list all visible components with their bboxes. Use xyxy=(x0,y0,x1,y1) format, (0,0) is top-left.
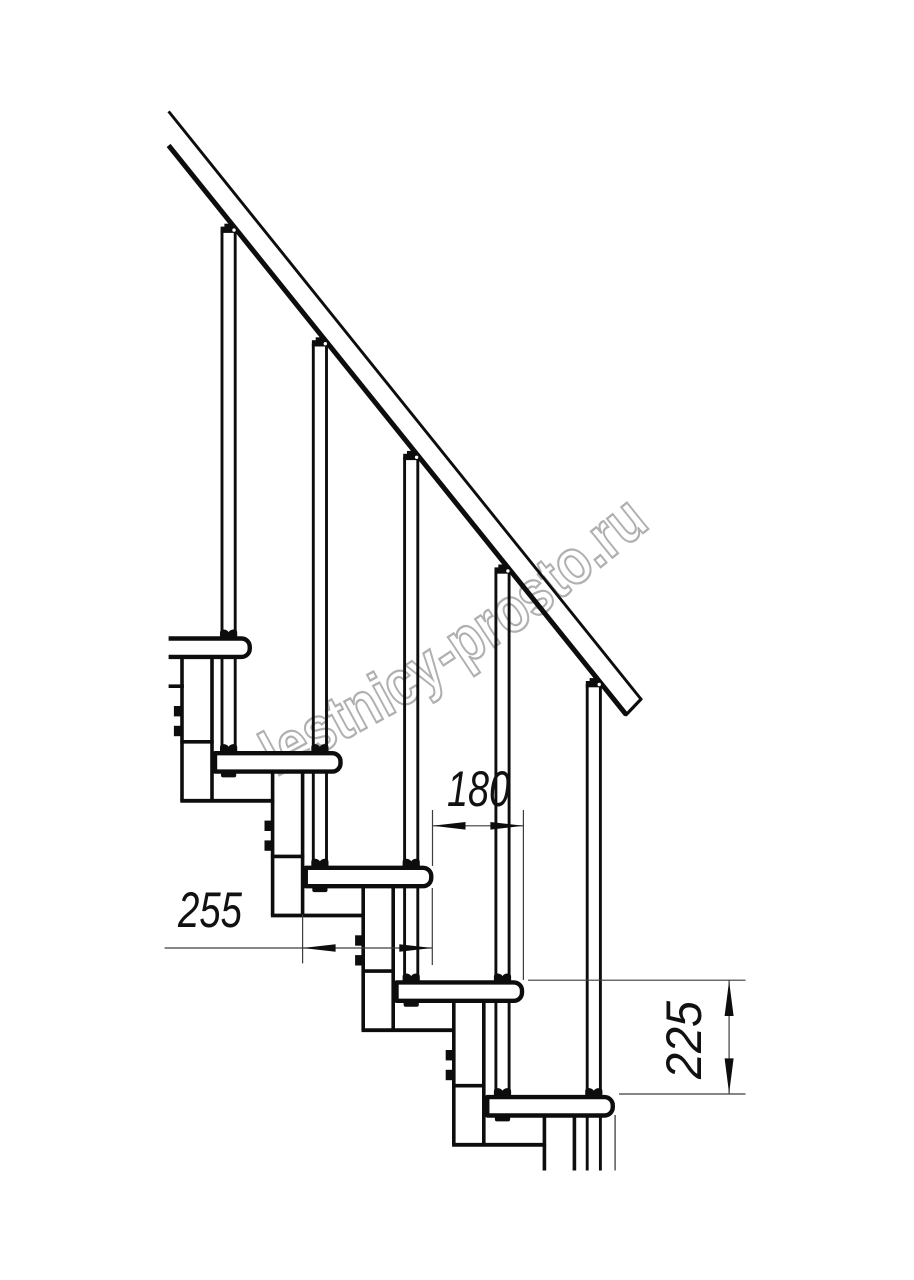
svg-text:255: 255 xyxy=(177,882,242,938)
svg-text:225: 225 xyxy=(656,1001,712,1080)
svg-text:180: 180 xyxy=(447,761,510,817)
